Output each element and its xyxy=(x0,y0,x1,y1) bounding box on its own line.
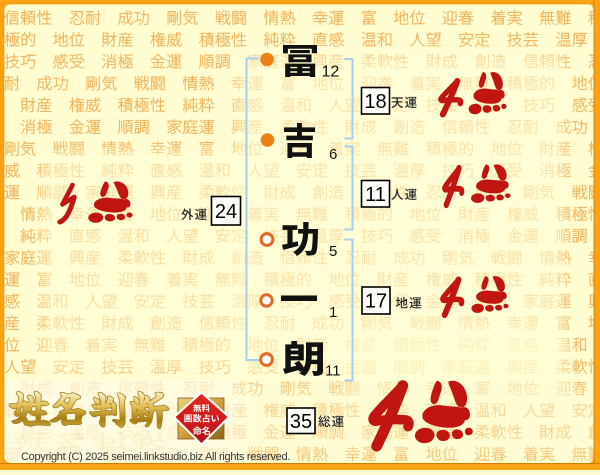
svg-text:6: 6 xyxy=(329,146,337,163)
svg-text:12: 12 xyxy=(322,64,340,81)
svg-text:24: 24 xyxy=(215,201,237,223)
svg-text:11: 11 xyxy=(325,363,341,380)
svg-text:35: 35 xyxy=(290,411,312,433)
svg-text:18: 18 xyxy=(364,91,386,113)
svg-text:Copyright (C) 2025 seimei.link: Copyright (C) 2025 seimei.linkstudio.biz… xyxy=(21,451,290,463)
svg-text:5: 5 xyxy=(329,243,337,260)
svg-text:1: 1 xyxy=(329,304,337,321)
svg-text:17: 17 xyxy=(365,291,387,313)
svg-text:11: 11 xyxy=(365,184,386,206)
